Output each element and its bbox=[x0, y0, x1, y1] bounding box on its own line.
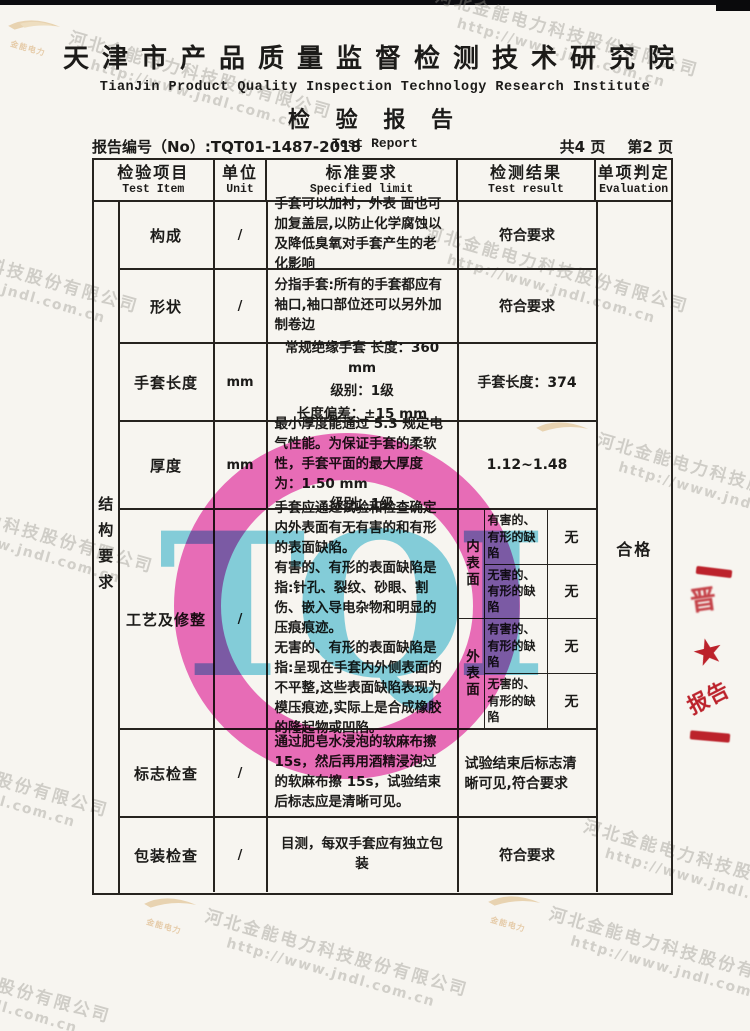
table-row-glove-length: 手套长度 mm 常规绝缘手套 长度：360 mm 级别：1级 长度偏差：±15 … bbox=[120, 344, 598, 422]
unit-value: / bbox=[215, 730, 268, 816]
unit-value: / bbox=[215, 818, 268, 892]
seal-edge-bar bbox=[690, 730, 731, 742]
category-structural-requirements: 结构要求 bbox=[94, 202, 120, 894]
page-count: 共4 页 第2 页 bbox=[560, 136, 673, 157]
seal-report-text: 报告 bbox=[682, 674, 735, 721]
seal-edge-bar bbox=[696, 566, 733, 578]
table-row-composition: 构成 / 手套可以加衬，外表 面也可加复盖层,以防止化学腐蚀以及降低臭氧对手套产… bbox=[120, 202, 598, 270]
test-result-text: 试验结束后标志清晰可见,符合要求 bbox=[459, 730, 598, 816]
specified-limit-text: 手套应通过试验和检查确定内外表面有无有害的和有形的表面缺陷。 有害的、有形的表面… bbox=[268, 510, 459, 728]
header-evaluation: 单项判定 Evaluation bbox=[596, 160, 671, 200]
test-result-text: 符合要求 bbox=[459, 270, 598, 342]
unit-value: mm bbox=[215, 422, 268, 508]
scan-edge-top bbox=[0, 0, 750, 5]
evaluation-result: 合格 bbox=[598, 202, 671, 894]
header-unit: 单位 Unit bbox=[215, 160, 268, 200]
scanned-test-report-page: 金能电力 河北金能电力科技股份有限公司http://www.jndl.com.c… bbox=[0, 0, 750, 1031]
header-test-result: 检测结果 Test result bbox=[458, 160, 597, 200]
item-name: 形状 bbox=[120, 270, 215, 342]
page-current: 第2 页 bbox=[627, 136, 673, 157]
pages-total: 共4 页 bbox=[560, 136, 606, 157]
scan-edge-top-right bbox=[716, 0, 750, 11]
document-header: 天津市产品质量监督检测技术研究院 TianJin Product Quality… bbox=[40, 38, 710, 151]
specified-limit-text: 最小厚度能通过 5.3 规定电气性能。为保证手套的柔软性，手套平面的最大厚度为：… bbox=[268, 422, 459, 508]
inner-surface-label: 内表面 bbox=[459, 510, 484, 619]
test-result-text: 符合要求 bbox=[459, 202, 598, 268]
table-row-workmanship-finish: 工艺及修整 / 手套应通过试验和检查确定内外表面有无有害的和有形的表面缺陷。 有… bbox=[120, 510, 598, 730]
defect-result-row: 有害的、有形的缺陷 无 bbox=[485, 619, 596, 674]
test-result-subtable: 内表面 外表面 有害的、有形的缺陷 无 无害的、有形的缺陷 无 bbox=[459, 510, 598, 728]
test-result-text: 1.12~1.48 bbox=[459, 422, 598, 508]
specified-limit-text: 常规绝缘手套 长度：360 mm 级别：1级 长度偏差：±15 mm bbox=[268, 344, 459, 420]
report-number-value: TQT01-1487-2018 bbox=[211, 138, 361, 156]
report-number-line: 报告编号（No）:TQT01-1487-2018 共4 页 第2 页 bbox=[92, 136, 673, 157]
item-name: 标志检查 bbox=[120, 730, 215, 816]
item-name: 构成 bbox=[120, 202, 215, 268]
specified-limit-text: 手套可以加衬，外表 面也可加复盖层,以防止化学腐蚀以及降低臭氧对手套产生的老化影… bbox=[268, 202, 459, 268]
defect-result-row: 无害的、有形的缺陷 无 bbox=[485, 565, 596, 620]
specified-limit-text: 分指手套:所有的手套都应有袖口,袖口部位还可以另外加制卷边 bbox=[268, 270, 459, 342]
seal-partial-character: 晋 bbox=[688, 578, 719, 618]
table-row-shape: 形状 / 分指手套:所有的手套都应有袖口,袖口部位还可以另外加制卷边 符合要求 bbox=[120, 270, 598, 344]
item-name: 厚度 bbox=[120, 422, 215, 508]
test-result-text: 手套长度：374 bbox=[459, 344, 598, 420]
test-report-table: 检验项目 Test Item 单位 Unit 标准要求 Specified li… bbox=[92, 158, 673, 895]
unit-value: mm bbox=[215, 344, 268, 420]
unit-value: / bbox=[215, 270, 268, 342]
item-name: 手套长度 bbox=[120, 344, 215, 420]
red-paging-seal-partial: 晋 ★ 报告 bbox=[682, 560, 746, 760]
star-icon: ★ bbox=[688, 629, 729, 677]
specified-limit-text: 通过肥皂水浸泡的软麻布擦15s，然后再用酒精浸泡过的软麻布擦 15s，试验结束后… bbox=[268, 730, 459, 816]
unit-value: / bbox=[215, 510, 268, 728]
institute-name-en: TianJin Product Quality Inspection Techn… bbox=[40, 80, 710, 95]
table-row-marking-check: 标志检查 / 通过肥皂水浸泡的软麻布擦15s，然后再用酒精浸泡过的软麻布擦 15… bbox=[120, 730, 598, 818]
item-name: 工艺及修整 bbox=[120, 510, 215, 728]
outer-surface-label: 外表面 bbox=[459, 619, 484, 728]
table-row-packaging-check: 包装检查 / 目测，每双手套应有独立包装 符合要求 bbox=[120, 818, 598, 892]
item-name: 包装检查 bbox=[120, 818, 215, 892]
unit-value: / bbox=[215, 202, 268, 268]
header-specified-limit: 标准要求 Specified limit bbox=[267, 160, 457, 200]
watermark-tile: 金能电力 河北金能电力科技股份有限公司http://www.jndl.com.c… bbox=[480, 882, 750, 1016]
table-row-thickness: 厚度 mm 最小厚度能通过 5.3 规定电气性能。为保证手套的柔软性，手套平面的… bbox=[120, 422, 598, 510]
watermark-tile: 金能电力 河北金能电力科技股份有限公司http://www.jndl.com.c… bbox=[136, 884, 472, 1018]
header-test-item: 检验项目 Test Item bbox=[94, 160, 215, 200]
watermark-tile: 河北金能电力科技股份有限公司http://www.jndl.com.cn bbox=[0, 928, 114, 1031]
report-title-cn: 检 验 报 告 bbox=[40, 102, 710, 134]
specified-limit-text: 目测，每双手套应有独立包装 bbox=[268, 818, 459, 892]
test-result-text: 符合要求 bbox=[459, 818, 598, 892]
defect-result-row: 有害的、有形的缺陷 无 bbox=[485, 510, 596, 565]
report-number-label: 报告编号（No）: bbox=[92, 138, 211, 156]
defect-result-row: 无害的、有形的缺陷 无 bbox=[485, 674, 596, 729]
report-number: 报告编号（No）:TQT01-1487-2018 bbox=[92, 136, 361, 157]
institute-name-cn: 天津市产品质量监督检测技术研究院 bbox=[40, 38, 710, 75]
